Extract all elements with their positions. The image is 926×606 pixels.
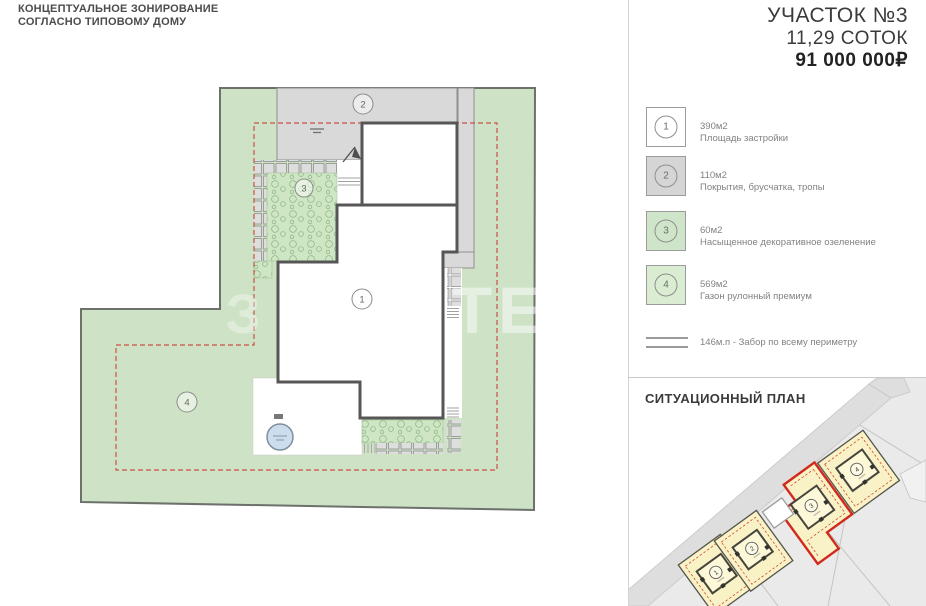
situational-plan-drawing: 1 2 4: [628, 378, 926, 606]
legend-area: 110м2: [700, 170, 825, 182]
legend-swatch-number: 2: [655, 165, 678, 188]
svg-text:З: З: [225, 282, 260, 345]
legend-swatch-4: 4: [646, 265, 686, 305]
legend-swatch-number: 3: [655, 220, 678, 243]
legend-swatch-number: 1: [655, 116, 678, 139]
legend-label: Насыщенное декоративное озеленение: [700, 237, 876, 249]
svg-text:4: 4: [184, 398, 189, 409]
walkway-upper: [337, 160, 362, 205]
legend-text: 569м2 Газон рулонный премиум: [700, 279, 812, 303]
legend-label: Площадь застройки: [700, 133, 788, 145]
legend-label: Покрытия, брусчатка, тропы: [700, 182, 825, 194]
svg-text:ТЕ: ТЕ: [452, 273, 548, 347]
legend-item-3: 3 60м2 Насыщенное декоративное озеленени…: [646, 211, 876, 251]
legend-label: Газон рулонный премиум: [700, 291, 812, 303]
legend-area: 390м2: [700, 121, 788, 133]
main-plan-drawing: 1 2 3 4 ТЕ З: [0, 0, 628, 606]
fence-label: 146м.п - Забор по всему периметру: [700, 337, 857, 348]
svg-text:3: 3: [301, 184, 306, 195]
legend-swatch-1: 1: [646, 107, 686, 147]
legend-swatch-number: 4: [655, 274, 678, 297]
zone-3-marker: 3: [295, 179, 313, 197]
svg-text:2: 2: [360, 100, 365, 111]
legend-area: 569м2: [700, 279, 812, 291]
legend-text: 60м2 Насыщенное декоративное озеленение: [700, 225, 876, 249]
zone-1-marker: 1: [352, 289, 372, 309]
legend-swatch-3: 3: [646, 211, 686, 251]
svg-text:1: 1: [359, 295, 364, 306]
fence-legend: 146м.п - Забор по всему периметру: [646, 337, 857, 348]
legend-area: 60м2: [700, 225, 876, 237]
legend-swatch-2: 2: [646, 156, 686, 196]
legend-text: 110м2 Покрытия, брусчатка, тропы: [700, 170, 825, 194]
legend-text: 390м2 Площадь застройки: [700, 121, 788, 145]
legend-item-4: 4 569м2 Газон рулонный премиум: [646, 265, 812, 305]
legend-item-2: 2 110м2 Покрытия, брусчатка, тропы: [646, 156, 825, 196]
zone-2-marker: 2: [353, 94, 373, 114]
zone-4-marker: 4: [177, 392, 197, 412]
plot-area: 11,29 СОТОК: [767, 28, 908, 50]
fence-line-icon: [646, 337, 688, 348]
planting-area-upper: [254, 160, 338, 278]
legend-item-1: 1 390м2 Площадь застройки: [646, 107, 788, 147]
plot-title: УЧАСТОК №3: [767, 4, 908, 28]
page: КОНЦЕПТУАЛЬНОЕ ЗОНИРОВАНИЕ СОГЛАСНО ТИПО…: [0, 0, 926, 606]
plot-price: 91 000 000₽: [767, 50, 908, 72]
panel-header: УЧАСТОК №3 11,29 СОТОК 91 000 000₽: [767, 4, 908, 72]
